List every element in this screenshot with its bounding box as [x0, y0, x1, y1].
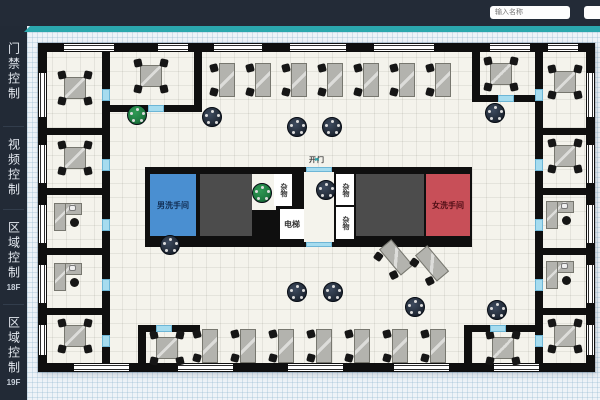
- desk-pair: [421, 327, 447, 365]
- table-seat: [142, 112, 145, 115]
- table-seat: [490, 307, 493, 310]
- table-seat: [296, 120, 299, 123]
- sidebar-item-floor-label: 19F: [7, 378, 21, 387]
- table-seat: [217, 114, 220, 117]
- desk: [240, 329, 256, 363]
- door-marker[interactable]: [102, 219, 110, 231]
- desk-4seat: [150, 331, 184, 365]
- monitor: [561, 203, 568, 209]
- desk-4seat: [484, 57, 518, 91]
- table-seat: [261, 186, 264, 189]
- door-marker[interactable]: [306, 242, 332, 247]
- chair: [573, 64, 582, 73]
- table-seat: [496, 303, 499, 306]
- chair: [382, 353, 392, 363]
- desk-4seat: [58, 141, 92, 175]
- chair: [133, 84, 142, 93]
- table-seat: [414, 300, 417, 303]
- desk-pair: [193, 327, 219, 365]
- wall: [47, 188, 102, 195]
- window: [587, 325, 594, 355]
- window: [587, 145, 594, 183]
- table-seat: [494, 106, 497, 109]
- chair: [382, 329, 392, 339]
- table-seat: [302, 289, 305, 292]
- window: [178, 364, 233, 371]
- chair: [483, 56, 492, 65]
- women-restroom-label: 女洗手间: [432, 200, 464, 211]
- door-marker[interactable]: [535, 159, 543, 171]
- door-marker[interactable]: [498, 95, 514, 102]
- sidebar-item-label: 视频控制: [7, 138, 21, 198]
- round-table-dark: [287, 282, 307, 302]
- window: [587, 265, 594, 303]
- storage-c-label: 杂物: [340, 216, 350, 230]
- chair: [83, 70, 92, 79]
- chair: [573, 90, 582, 99]
- table-seat: [140, 119, 143, 122]
- desk-pair: [390, 61, 416, 99]
- table-seat: [325, 124, 328, 127]
- round-table-dark: [202, 107, 222, 127]
- app-window: 门禁控制视频控制区域控制18F区域控制19F 男洗手间杂物电梯杂物杂物女洗手间◄…: [0, 0, 600, 400]
- chair: [209, 63, 219, 73]
- round-table-dark: [287, 117, 307, 137]
- window: [74, 364, 129, 371]
- desk-pair: [383, 327, 409, 365]
- chair: [175, 356, 184, 365]
- chair: [573, 164, 582, 173]
- chair: [281, 87, 291, 97]
- table-seat: [325, 183, 328, 186]
- sidebar-item-1[interactable]: 门禁控制: [0, 42, 27, 102]
- sidebar-item-label: 区域控制: [7, 316, 21, 376]
- table-seat: [328, 296, 331, 299]
- chair: [306, 329, 316, 339]
- table-seat: [165, 249, 168, 252]
- chair: [230, 329, 240, 339]
- chair: [547, 138, 556, 147]
- table-seat: [302, 124, 305, 127]
- desk: [354, 329, 370, 363]
- chair: [192, 329, 202, 339]
- room-women-restroom[interactable]: 女洗手间: [426, 174, 470, 236]
- desk: [327, 63, 343, 97]
- window: [214, 44, 262, 51]
- table-seat: [255, 190, 258, 193]
- desk-pair: [354, 61, 380, 99]
- desk: [202, 329, 218, 363]
- sidebar-item-label: 门禁控制: [7, 42, 21, 102]
- desk-pair: [318, 61, 344, 99]
- chair: [57, 344, 66, 353]
- desk-4seat: [134, 59, 168, 93]
- desk-4seat: [58, 319, 92, 353]
- chair: [509, 82, 518, 91]
- table-seat: [331, 187, 334, 190]
- exec-desk: [544, 259, 576, 293]
- table-seat: [207, 121, 210, 124]
- table-seat: [420, 304, 423, 307]
- chair: [83, 318, 92, 327]
- table-seat: [408, 304, 411, 307]
- table-seat: [331, 120, 334, 123]
- desk: [554, 325, 576, 347]
- window: [374, 44, 434, 51]
- chair: [485, 356, 494, 365]
- chair: [57, 318, 66, 327]
- desk: [255, 63, 271, 97]
- table-seat: [265, 197, 268, 200]
- storage-a-label: 杂物: [278, 183, 288, 197]
- room-storage-a[interactable]: 杂物: [274, 174, 292, 206]
- chair: [70, 218, 79, 227]
- desk-pair: [231, 327, 257, 365]
- chair: [420, 329, 430, 339]
- chair: [547, 344, 556, 353]
- round-table-dark: [316, 180, 336, 200]
- exec-desk: [52, 201, 84, 235]
- chair: [353, 87, 363, 97]
- chair: [83, 166, 92, 175]
- open-door-sign: ◄开门►: [282, 154, 352, 165]
- table-seat: [300, 296, 303, 299]
- table-seat: [490, 117, 493, 120]
- window: [39, 265, 46, 303]
- table-seat: [338, 289, 341, 292]
- chair: [562, 276, 571, 285]
- chair: [57, 70, 66, 79]
- chair: [511, 356, 520, 365]
- table-seat: [500, 314, 503, 317]
- table-seat: [319, 187, 322, 190]
- desk: [399, 63, 415, 97]
- desk: [54, 203, 66, 231]
- table-seat: [215, 121, 218, 124]
- search-input[interactable]: [490, 6, 570, 19]
- window: [288, 364, 343, 371]
- desk-pair: [407, 243, 451, 289]
- desk-4seat: [486, 331, 520, 365]
- chair: [133, 58, 142, 67]
- table-seat: [292, 296, 295, 299]
- table-seat: [296, 285, 299, 288]
- table-seat: [321, 194, 324, 197]
- door-marker[interactable]: [535, 335, 543, 347]
- round-table-dark: [405, 297, 425, 317]
- table-seat: [130, 112, 133, 115]
- window: [39, 325, 46, 355]
- table-seat: [500, 110, 503, 113]
- table-seat: [335, 131, 338, 134]
- desk: [140, 65, 162, 87]
- chair: [547, 164, 556, 173]
- door-marker[interactable]: [535, 89, 543, 101]
- door-marker[interactable]: [102, 279, 110, 291]
- chair: [509, 56, 518, 65]
- table-seat: [136, 108, 139, 111]
- chair: [209, 87, 219, 97]
- door-marker[interactable]: [535, 219, 543, 231]
- desk: [546, 201, 558, 229]
- desk: [435, 63, 451, 97]
- chair: [245, 63, 255, 73]
- chair: [344, 353, 354, 363]
- chair: [562, 216, 571, 225]
- desk: [291, 63, 307, 97]
- chair: [230, 353, 240, 363]
- desk-pair: [282, 61, 308, 99]
- wall: [47, 248, 102, 255]
- wall: [543, 188, 586, 195]
- chair: [511, 330, 520, 339]
- sidebar-divider: [3, 209, 24, 210]
- desk-pair: [269, 327, 295, 365]
- wall: [543, 248, 586, 255]
- round-table-dark: [160, 235, 180, 255]
- window: [158, 44, 188, 51]
- window: [548, 44, 578, 51]
- desk: [492, 337, 514, 359]
- desk-4seat: [548, 139, 582, 173]
- desk-pair: [426, 61, 452, 99]
- window: [290, 44, 346, 51]
- desk: [64, 325, 86, 347]
- chair: [70, 278, 79, 287]
- chair: [317, 87, 327, 97]
- chair: [149, 356, 158, 365]
- desk-pair: [307, 327, 333, 365]
- window: [39, 73, 46, 117]
- table-seat: [290, 124, 293, 127]
- table-seat: [418, 311, 421, 314]
- wall: [47, 128, 102, 135]
- window: [494, 364, 539, 371]
- chair: [420, 353, 430, 363]
- table-seat: [327, 131, 330, 134]
- window: [587, 73, 594, 117]
- chair: [57, 96, 66, 105]
- chair: [573, 138, 582, 147]
- secondary-input[interactable]: [584, 6, 600, 19]
- wall: [47, 308, 102, 315]
- table-seat: [132, 119, 135, 122]
- top-header-bar: [0, 0, 600, 26]
- wall: [194, 52, 202, 112]
- chair: [389, 87, 399, 97]
- room-storage-b[interactable]: 杂物: [336, 174, 354, 205]
- door-marker[interactable]: [490, 325, 506, 332]
- desk: [64, 77, 86, 99]
- window: [490, 44, 530, 51]
- round-table-dark: [323, 282, 343, 302]
- chair: [547, 318, 556, 327]
- desk: [490, 63, 512, 85]
- open-door-right-arrow: ►: [314, 157, 320, 163]
- table-seat: [488, 110, 491, 113]
- round-table-dark: [487, 300, 507, 320]
- table-seat: [290, 289, 293, 292]
- sidebar-item-4[interactable]: 区域控制19F: [0, 316, 27, 387]
- round-table-dark: [485, 103, 505, 123]
- room-men-restroom[interactable]: 男洗手间: [150, 174, 196, 236]
- round-table-green: [252, 183, 272, 203]
- main-canvas: 男洗手间杂物电梯杂物杂物女洗手间◄开门►: [27, 32, 600, 400]
- desk-4seat: [548, 319, 582, 353]
- table-seat: [337, 124, 340, 127]
- room-storage-c[interactable]: 杂物: [336, 207, 354, 239]
- door-marker[interactable]: [535, 279, 543, 291]
- desk: [430, 329, 446, 363]
- desk-pair: [345, 327, 371, 365]
- round-table-dark: [322, 117, 342, 137]
- chair: [57, 166, 66, 175]
- chair: [547, 64, 556, 73]
- chair: [159, 58, 168, 67]
- table-seat: [502, 307, 505, 310]
- table-seat: [163, 242, 166, 245]
- window: [39, 205, 46, 243]
- desk-pair: [210, 61, 236, 99]
- door-marker[interactable]: [102, 89, 110, 101]
- chair: [83, 140, 92, 149]
- table-seat: [300, 131, 303, 134]
- door-marker[interactable]: [102, 335, 110, 347]
- exec-desk: [52, 261, 84, 295]
- sidebar-item-floor-label: 18F: [7, 283, 21, 292]
- monitor: [69, 265, 76, 271]
- wall: [543, 308, 586, 315]
- door-marker[interactable]: [306, 167, 332, 172]
- table-seat: [492, 314, 495, 317]
- door-marker[interactable]: [148, 105, 164, 112]
- table-seat: [336, 296, 339, 299]
- chair: [547, 90, 556, 99]
- sidebar-item-label: 区域控制: [7, 221, 21, 281]
- chair: [353, 63, 363, 73]
- door-marker[interactable]: [156, 325, 172, 332]
- desk: [546, 261, 558, 289]
- chair: [159, 84, 168, 93]
- window: [394, 364, 449, 371]
- table-seat: [169, 238, 172, 241]
- chair: [281, 63, 291, 73]
- desk-4seat: [58, 71, 92, 105]
- sidebar-menu: 门禁控制视频控制区域控制18F区域控制19F: [0, 0, 27, 400]
- floor-plan: 男洗手间杂物电梯杂物杂物女洗手间◄开门►: [38, 43, 595, 372]
- chair: [306, 353, 316, 363]
- table-seat: [292, 131, 295, 134]
- table-seat: [329, 194, 332, 197]
- desk: [278, 329, 294, 363]
- table-seat: [211, 110, 214, 113]
- chair: [175, 330, 184, 339]
- sidebar-item-3[interactable]: 区域控制18F: [0, 221, 27, 292]
- chair: [483, 82, 492, 91]
- monitor: [69, 205, 76, 211]
- sidebar-item-2[interactable]: 视频控制: [0, 138, 27, 198]
- desk: [156, 337, 178, 359]
- desk: [554, 145, 576, 167]
- desk: [363, 63, 379, 97]
- desk: [554, 71, 576, 93]
- chair: [317, 63, 327, 73]
- storage-b-label: 杂物: [340, 183, 350, 197]
- room-elevator[interactable]: 电梯: [280, 209, 304, 239]
- desk: [64, 147, 86, 169]
- window: [587, 205, 594, 243]
- room-dark-room-right[interactable]: [356, 174, 424, 236]
- chair: [344, 329, 354, 339]
- table-seat: [267, 190, 270, 193]
- chair: [389, 63, 399, 73]
- chair: [83, 96, 92, 105]
- chair: [573, 344, 582, 353]
- wall: [543, 128, 586, 135]
- teal-accent-strip: [24, 26, 600, 32]
- chair: [268, 353, 278, 363]
- table-seat: [173, 249, 176, 252]
- chair: [425, 63, 435, 73]
- room-dark-room-left[interactable]: [200, 174, 252, 236]
- window: [39, 145, 46, 183]
- desk: [219, 63, 235, 97]
- window: [64, 44, 114, 51]
- table-seat: [257, 197, 260, 200]
- round-table-green: [127, 105, 147, 125]
- exec-desk: [544, 199, 576, 233]
- elevator-label: 电梯: [284, 219, 300, 230]
- sidebar-divider: [3, 304, 24, 305]
- table-seat: [175, 242, 178, 245]
- table-seat: [332, 285, 335, 288]
- men-restroom-label: 男洗手间: [157, 200, 189, 211]
- door-marker[interactable]: [102, 159, 110, 171]
- table-seat: [410, 311, 413, 314]
- chair: [268, 329, 278, 339]
- chair: [83, 344, 92, 353]
- desk: [316, 329, 332, 363]
- monitor: [561, 263, 568, 269]
- sidebar-divider: [3, 126, 24, 127]
- desk-pair: [246, 61, 272, 99]
- chair: [57, 140, 66, 149]
- table-seat: [326, 289, 329, 292]
- chair: [192, 353, 202, 363]
- desk-4seat: [548, 65, 582, 99]
- table-seat: [205, 114, 208, 117]
- desk: [54, 263, 66, 291]
- table-seat: [498, 117, 501, 120]
- chair: [425, 87, 435, 97]
- chair: [573, 318, 582, 327]
- chair: [245, 87, 255, 97]
- desk: [392, 329, 408, 363]
